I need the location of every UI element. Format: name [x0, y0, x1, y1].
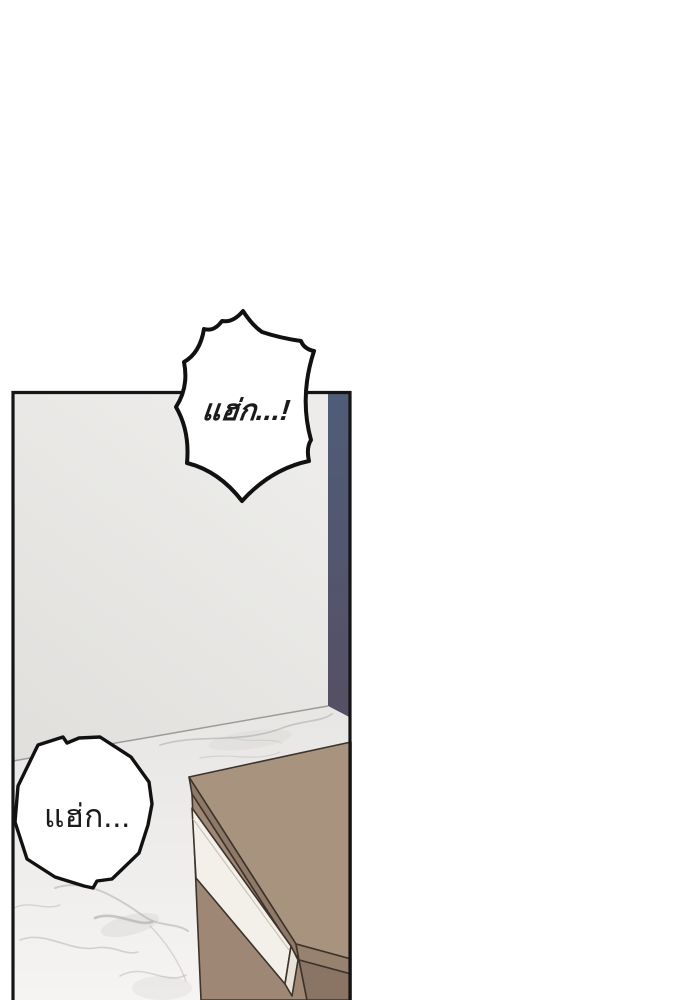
comic-panel-scene — [0, 0, 690, 1000]
comic-page: แฮ่ก...! แฮ่ก... — [0, 0, 690, 1000]
nightstand — [189, 742, 351, 1000]
burst-bubble-text: แฮ่ก...! — [175, 386, 316, 438]
round-bubble-text: แฮ่ก... — [20, 792, 154, 842]
accent-wall-strip — [328, 391, 351, 718]
